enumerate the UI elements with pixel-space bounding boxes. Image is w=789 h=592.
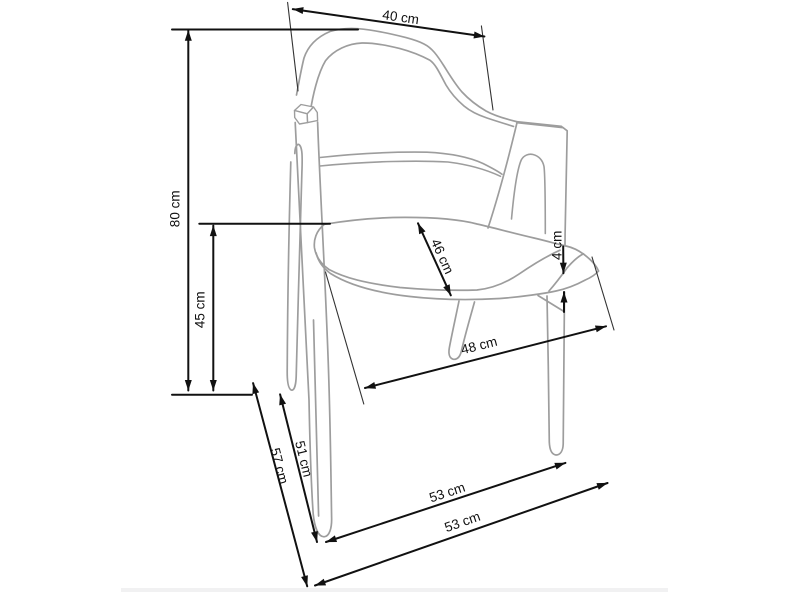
- svg-text:53 cm: 53 cm: [443, 509, 483, 535]
- svg-text:45 cm: 45 cm: [193, 291, 208, 328]
- svg-text:57 cm: 57 cm: [267, 446, 291, 485]
- svg-text:40 cm: 40 cm: [381, 7, 420, 27]
- svg-text:80 cm: 80 cm: [168, 190, 183, 227]
- svg-text:4 cm: 4 cm: [550, 231, 565, 260]
